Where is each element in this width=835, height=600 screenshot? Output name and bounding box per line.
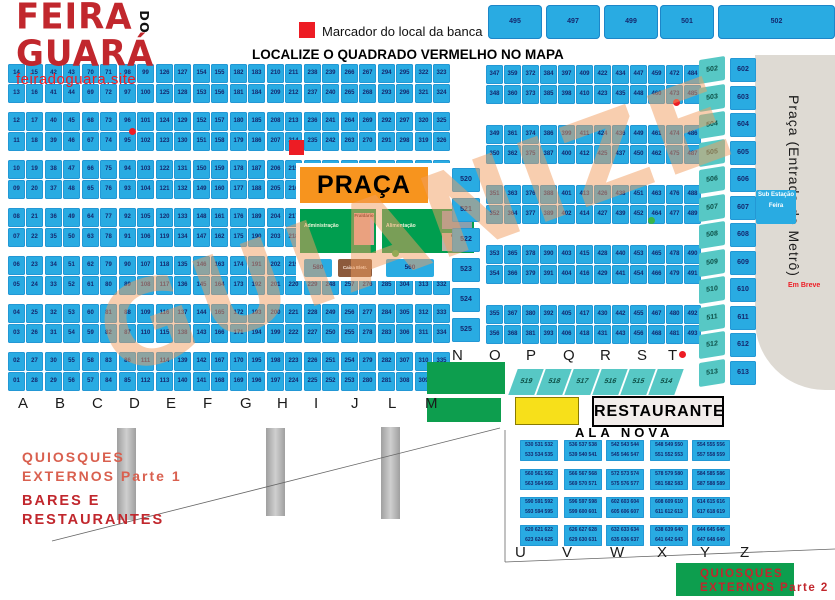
stall-cell[interactable]: 242 bbox=[322, 132, 339, 151]
stall-cell[interactable]: 58 bbox=[82, 352, 99, 371]
stall-cell[interactable]: 521 bbox=[452, 198, 480, 222]
stall-cell[interactable]: 523 bbox=[452, 258, 480, 282]
stall-cell[interactable]: 363 bbox=[504, 185, 521, 204]
stall-cell[interactable]: 193 bbox=[248, 304, 265, 323]
stall-cell[interactable]: 46 bbox=[63, 132, 80, 151]
stall-cell[interactable]: 311 bbox=[415, 324, 432, 343]
stall-cell[interactable]: 280 bbox=[359, 372, 376, 391]
stall-cell[interactable]: 449 bbox=[630, 125, 647, 144]
stall-cell[interactable]: 378 bbox=[522, 245, 539, 264]
stall-cell[interactable]: 366 bbox=[504, 265, 521, 284]
stall-cell[interactable]: 228 bbox=[304, 304, 321, 323]
ala-nova-block[interactable]: 608 609 610611 612 613 bbox=[650, 497, 688, 518]
stall-cell[interactable]: 62 bbox=[82, 256, 99, 275]
stall-cell[interactable]: 67 bbox=[82, 132, 99, 151]
ala-nova-block[interactable]: 530 531 532533 534 535 bbox=[520, 440, 558, 461]
stall-cell[interactable]: 81 bbox=[100, 304, 117, 323]
stall-cell[interactable]: 510 bbox=[699, 276, 725, 304]
stall-cell[interactable]: 01 bbox=[8, 372, 25, 391]
stall-cell[interactable]: 440 bbox=[612, 245, 629, 264]
stall-cell[interactable]: 174 bbox=[230, 256, 247, 275]
stall-cell[interactable]: 23 bbox=[26, 256, 43, 275]
stall-cell[interactable]: 297 bbox=[396, 112, 413, 131]
stall-cell[interactable]: 47 bbox=[63, 160, 80, 179]
stall-cell[interactable]: 31 bbox=[45, 324, 62, 343]
stall-cell[interactable]: 293 bbox=[378, 84, 395, 103]
stall-cell[interactable]: 365 bbox=[504, 245, 521, 264]
stall-cell[interactable]: 104 bbox=[137, 180, 154, 199]
stall-cell[interactable]: 426 bbox=[594, 185, 611, 204]
stall-cell[interactable]: 306 bbox=[396, 324, 413, 343]
stall-cell[interactable]: 116 bbox=[156, 304, 173, 323]
stall-cell[interactable]: 37 bbox=[45, 180, 62, 199]
stall-cell[interactable]: 209 bbox=[267, 84, 284, 103]
stall-cell[interactable]: 429 bbox=[594, 265, 611, 284]
stall-cell[interactable]: 431 bbox=[594, 325, 611, 344]
stall-cell[interactable]: 410 bbox=[576, 85, 593, 104]
stall-cell[interactable]: 127 bbox=[174, 64, 191, 83]
stall-cell[interactable]: 09 bbox=[8, 180, 25, 199]
stall-cell[interactable]: 121 bbox=[156, 180, 173, 199]
stall-cell[interactable]: 223 bbox=[285, 352, 302, 371]
stall-cell[interactable]: 189 bbox=[248, 208, 265, 227]
stall-cell[interactable]: 376 bbox=[522, 185, 539, 204]
stall-cell[interactable]: 404 bbox=[558, 265, 575, 284]
stall-cell[interactable]: 78 bbox=[100, 228, 117, 247]
stall-cell[interactable]: 308 bbox=[396, 372, 413, 391]
stall-cell[interactable]: 02 bbox=[8, 352, 25, 371]
stall-cell[interactable]: 307 bbox=[396, 352, 413, 371]
stall-cell[interactable]: 143 bbox=[193, 324, 210, 343]
stall-cell[interactable]: 128 bbox=[174, 84, 191, 103]
stall-cell[interactable]: 21 bbox=[26, 208, 43, 227]
stall-cell[interactable]: 386 bbox=[540, 125, 557, 144]
stall-cell[interactable]: 74 bbox=[100, 132, 117, 151]
stall-cell[interactable]: 145 bbox=[193, 276, 210, 295]
stall-cell[interactable]: 611 bbox=[730, 306, 756, 330]
stall-cell[interactable]: 177 bbox=[230, 180, 247, 199]
stall-cell[interactable]: 435 bbox=[612, 85, 629, 104]
stall-cell[interactable]: 461 bbox=[648, 125, 665, 144]
stall-cell[interactable]: 379 bbox=[522, 265, 539, 284]
stall-cell[interactable]: 476 bbox=[666, 185, 683, 204]
stall-cell[interactable]: 173 bbox=[230, 276, 247, 295]
stall-cell[interactable]: 251 bbox=[322, 352, 339, 371]
ala-nova-block[interactable]: 548 549 550551 552 553 bbox=[650, 440, 688, 461]
stall-cell[interactable]: 29 bbox=[45, 372, 62, 391]
stall-cell[interactable]: 522 bbox=[452, 228, 480, 252]
stall-cell[interactable]: 18 bbox=[26, 132, 43, 151]
stall-cell[interactable]: 409 bbox=[576, 65, 593, 84]
stall-cell[interactable]: 183 bbox=[248, 64, 265, 83]
stall-cell[interactable]: 265 bbox=[341, 84, 358, 103]
stall-cell[interactable]: 20 bbox=[26, 180, 43, 199]
stall-cell[interactable]: 63 bbox=[82, 228, 99, 247]
stall-cell[interactable]: 238 bbox=[304, 64, 321, 83]
stall-cell[interactable]: 441 bbox=[612, 265, 629, 284]
stall-cell[interactable]: 403 bbox=[558, 245, 575, 264]
stall-cell[interactable]: 88 bbox=[119, 304, 136, 323]
stall-cell[interactable]: 350 bbox=[486, 145, 503, 164]
stall-cell[interactable]: 279 bbox=[359, 352, 376, 371]
stall-cell[interactable]: 03 bbox=[8, 324, 25, 343]
stall-cell[interactable]: 609 bbox=[730, 251, 756, 275]
stall-cell[interactable]: 324 bbox=[433, 84, 450, 103]
stall-cell[interactable]: 427 bbox=[594, 205, 611, 224]
stall-cell[interactable]: 465 bbox=[648, 245, 665, 264]
stall-cell[interactable]: 92 bbox=[119, 208, 136, 227]
stall-cell[interactable]: 349 bbox=[486, 125, 503, 144]
stall-cell[interactable]: 509 bbox=[699, 248, 725, 276]
stall-cell[interactable]: 178 bbox=[230, 160, 247, 179]
stall-cell[interactable]: 602 bbox=[730, 58, 756, 82]
stall-cell[interactable]: 139 bbox=[174, 352, 191, 371]
stall-cell[interactable]: 91 bbox=[119, 228, 136, 247]
stall-cell[interactable]: 455 bbox=[630, 305, 647, 324]
ala-nova-block[interactable]: 626 627 628629 630 631 bbox=[564, 525, 602, 546]
stall-cell[interactable]: 502 bbox=[699, 56, 725, 84]
stall-cell[interactable]: 194 bbox=[248, 324, 265, 343]
stall-cell[interactable]: 36 bbox=[45, 208, 62, 227]
stall-cell[interactable]: 120 bbox=[156, 208, 173, 227]
stall-cell[interactable]: 456 bbox=[630, 325, 647, 344]
stall-cell[interactable]: 389 bbox=[540, 205, 557, 224]
stall-cell[interactable]: 24 bbox=[26, 276, 43, 295]
stall-cell[interactable]: 167 bbox=[211, 352, 228, 371]
stall-cell[interactable]: 49 bbox=[63, 208, 80, 227]
ala-nova-block[interactable]: 536 537 538539 540 541 bbox=[564, 440, 602, 461]
stall-cell[interactable]: 101 bbox=[137, 112, 154, 131]
stall-cell[interactable]: 226 bbox=[304, 352, 321, 371]
stall-cell[interactable]: 524 bbox=[452, 288, 480, 312]
stall-cell[interactable]: 347 bbox=[486, 65, 503, 84]
stall-cell[interactable]: 506 bbox=[699, 166, 725, 194]
stall-cell[interactable]: 38 bbox=[45, 160, 62, 179]
stall-cell[interactable]: 102 bbox=[137, 132, 154, 151]
stall-cell[interactable]: 213 bbox=[285, 112, 302, 131]
stall-cell[interactable]: 225 bbox=[304, 372, 321, 391]
stall-cell[interactable]: 401 bbox=[558, 185, 575, 204]
stall-cell[interactable]: 480 bbox=[666, 305, 683, 324]
stall-cell[interactable]: 25 bbox=[26, 304, 43, 323]
stall-cell[interactable]: 110 bbox=[137, 324, 154, 343]
stall-cell[interactable]: 352 bbox=[486, 205, 503, 224]
stall-cell[interactable]: 417 bbox=[576, 305, 593, 324]
stall-cell[interactable]: 353 bbox=[486, 245, 503, 264]
stall-cell[interactable]: 144 bbox=[193, 304, 210, 323]
stall-cell[interactable]: 525 bbox=[452, 318, 480, 342]
stall-cell[interactable]: 10 bbox=[8, 160, 25, 179]
stall-cell[interactable]: 185 bbox=[248, 112, 265, 131]
stall-cell[interactable]: 163 bbox=[211, 256, 228, 275]
stall-cell[interactable]: 264 bbox=[341, 112, 358, 131]
stall-cell[interactable]: 610 bbox=[730, 278, 756, 302]
stall-cell[interactable]: 400 bbox=[558, 145, 575, 164]
stall-cell[interactable]: 475 bbox=[666, 145, 683, 164]
stall-cell[interactable]: 291 bbox=[378, 132, 395, 151]
stall-cell[interactable]: 200 bbox=[267, 304, 284, 323]
stall-cell[interactable]: 122 bbox=[156, 160, 173, 179]
stall-cell[interactable]: 283 bbox=[378, 324, 395, 343]
banca-location-marker[interactable] bbox=[289, 140, 304, 155]
stall-cell[interactable]: 385 bbox=[540, 85, 557, 104]
ala-nova-block[interactable]: 590 591 592593 594 595 bbox=[520, 497, 558, 518]
stall-cell[interactable]: 53 bbox=[63, 304, 80, 323]
stall-cell[interactable]: 176 bbox=[230, 208, 247, 227]
stall-cell[interactable]: 87 bbox=[119, 324, 136, 343]
stall-cell[interactable]: 39 bbox=[45, 132, 62, 151]
stall-cell[interactable]: 130 bbox=[174, 132, 191, 151]
stall-cell[interactable]: 76 bbox=[100, 180, 117, 199]
stall-cell[interactable]: 79 bbox=[100, 256, 117, 275]
stall-cell[interactable]: 212 bbox=[285, 84, 302, 103]
stall-cell[interactable]: 606 bbox=[730, 168, 756, 192]
stall-cell[interactable]: 292 bbox=[378, 112, 395, 131]
stall-cell[interactable]: 54 bbox=[63, 324, 80, 343]
stall-cell[interactable]: 270 bbox=[359, 132, 376, 151]
ala-nova-block[interactable]: 620 621 622623 624 625 bbox=[520, 525, 558, 546]
stall-cell[interactable]: 205 bbox=[267, 180, 284, 199]
stall-cell[interactable]: 374 bbox=[522, 125, 539, 144]
stall-cell[interactable]: 179 bbox=[230, 132, 247, 151]
stall-cell[interactable]: 147 bbox=[193, 228, 210, 247]
stall-cell[interactable]: 512 bbox=[699, 331, 725, 359]
stall-cell[interactable]: 241 bbox=[322, 112, 339, 131]
stall-cell[interactable]: 134 bbox=[174, 228, 191, 247]
stall-cell[interactable]: 201 bbox=[267, 276, 284, 295]
stall-cell[interactable]: 448 bbox=[630, 85, 647, 104]
stall-cell[interactable]: 474 bbox=[666, 125, 683, 144]
stall-cell[interactable]: 64 bbox=[82, 208, 99, 227]
stall-cell[interactable]: 172 bbox=[230, 304, 247, 323]
stall-cell[interactable]: 75 bbox=[100, 160, 117, 179]
stall-cell[interactable]: 162 bbox=[211, 228, 228, 247]
stall-cell[interactable]: 397 bbox=[558, 65, 575, 84]
stall-cell[interactable]: 82 bbox=[100, 324, 117, 343]
stall-cell[interactable]: 203 bbox=[267, 228, 284, 247]
stall-cell[interactable]: 55 bbox=[63, 352, 80, 371]
stall-cell[interactable]: 105 bbox=[137, 208, 154, 227]
stall-cell[interactable]: 208 bbox=[267, 112, 284, 131]
stall-cell[interactable]: 443 bbox=[612, 325, 629, 344]
stall-cell[interactable]: 68 bbox=[82, 112, 99, 131]
stall-cell[interactable]: 165 bbox=[211, 304, 228, 323]
stall-cell[interactable]: 182 bbox=[230, 64, 247, 83]
stall-cell[interactable]: 123 bbox=[156, 132, 173, 151]
stall-cell[interactable]: 333 bbox=[433, 304, 450, 323]
ala-nova-block[interactable]: 632 633 634635 636 637 bbox=[606, 525, 644, 546]
stall-cell[interactable]: 83 bbox=[100, 352, 117, 371]
stall-cell[interactable]: 278 bbox=[359, 324, 376, 343]
stall-cell[interactable]: 415 bbox=[576, 245, 593, 264]
stall-cell[interactable]: 398 bbox=[558, 85, 575, 104]
stall-cell[interactable]: 239 bbox=[322, 64, 339, 83]
stall-cell[interactable]: 195 bbox=[248, 352, 265, 371]
stall-cell[interactable]: 319 bbox=[415, 132, 432, 151]
stall-cell[interactable]: 166 bbox=[211, 324, 228, 343]
ala-nova-block[interactable]: 542 543 544545 546 547 bbox=[606, 440, 644, 461]
stall-cell[interactable]: 26 bbox=[26, 324, 43, 343]
stall-cell[interactable]: 159 bbox=[211, 160, 228, 179]
stall-cell[interactable]: 206 bbox=[267, 160, 284, 179]
stall-cell[interactable]: 202 bbox=[267, 256, 284, 275]
stall-cell[interactable]: 513 bbox=[699, 358, 725, 386]
stall-cell[interactable]: 520 bbox=[452, 168, 480, 192]
stall-cell[interactable]: 04 bbox=[8, 304, 25, 323]
stall-cell[interactable]: 380 bbox=[522, 305, 539, 324]
stall-cell[interactable]: 364 bbox=[504, 205, 521, 224]
stall-cell[interactable]: 384 bbox=[540, 65, 557, 84]
stall-cell[interactable]: 48 bbox=[63, 180, 80, 199]
stall-cell[interactable]: 199 bbox=[267, 324, 284, 343]
stall-cell[interactable]: 468 bbox=[648, 325, 665, 344]
stall-cell[interactable]: 154 bbox=[193, 64, 210, 83]
stall-cell[interactable]: 249 bbox=[322, 304, 339, 323]
stall-cell[interactable]: 240 bbox=[322, 84, 339, 103]
stall-cell[interactable]: 141 bbox=[193, 372, 210, 391]
stall-cell[interactable]: 168 bbox=[211, 372, 228, 391]
stall-cell[interactable]: 22 bbox=[26, 228, 43, 247]
stall-cell[interactable]: 612 bbox=[730, 333, 756, 357]
stall-cell[interactable]: 158 bbox=[211, 132, 228, 151]
stall-cell[interactable]: 334 bbox=[433, 324, 450, 343]
stall-cell[interactable]: 438 bbox=[612, 185, 629, 204]
stall-cell[interactable]: 236 bbox=[304, 112, 321, 131]
stall-cell[interactable]: 224 bbox=[285, 372, 302, 391]
stall-cell[interactable]: 117 bbox=[156, 276, 173, 295]
stall-cell[interactable]: 146 bbox=[193, 256, 210, 275]
stall-cell[interactable]: 07 bbox=[8, 228, 25, 247]
stall-cell[interactable]: 06 bbox=[8, 256, 25, 275]
stall-cell[interactable]: 126 bbox=[156, 64, 173, 83]
stall-cell[interactable]: 113 bbox=[156, 372, 173, 391]
stall-cell[interactable]: 66 bbox=[82, 160, 99, 179]
stall-cell[interactable]: 294 bbox=[378, 64, 395, 83]
stall-cell[interactable]: 27 bbox=[26, 352, 43, 371]
stall-cell[interactable]: 412 bbox=[576, 145, 593, 164]
stall-cell[interactable]: 57 bbox=[82, 372, 99, 391]
stall-cell[interactable]: 135 bbox=[174, 256, 191, 275]
ala-nova-block[interactable]: 578 579 580581 582 583 bbox=[650, 469, 688, 490]
stall-cell[interactable]: 267 bbox=[359, 64, 376, 83]
stall-cell[interactable]: 210 bbox=[267, 64, 284, 83]
stall-cell[interactable]: 281 bbox=[378, 372, 395, 391]
stall-cell[interactable]: 59 bbox=[82, 324, 99, 343]
stall-cell[interactable]: 323 bbox=[433, 64, 450, 83]
stall-cell[interactable]: 30 bbox=[45, 352, 62, 371]
stall-cell[interactable]: 33 bbox=[45, 276, 62, 295]
stall-cell[interactable]: 08 bbox=[8, 208, 25, 227]
stall-cell[interactable]: 73 bbox=[100, 112, 117, 131]
stall-cell[interactable]: 391 bbox=[540, 265, 557, 284]
stall-cell[interactable]: 393 bbox=[540, 325, 557, 344]
stall-cell[interactable]: 284 bbox=[378, 304, 395, 323]
stall-cell[interactable]: 140 bbox=[174, 372, 191, 391]
stall-cell[interactable]: 472 bbox=[666, 65, 683, 84]
stall-cell[interactable]: 296 bbox=[396, 84, 413, 103]
stall-cell[interactable]: 32 bbox=[45, 304, 62, 323]
stall-cell[interactable]: 277 bbox=[359, 304, 376, 323]
stall-block[interactable]: 501 bbox=[660, 5, 714, 39]
stall-cell[interactable]: 106 bbox=[137, 228, 154, 247]
stall-cell[interactable]: 133 bbox=[174, 208, 191, 227]
stall-cell[interactable]: 164 bbox=[211, 276, 228, 295]
stall-cell[interactable]: 478 bbox=[666, 245, 683, 264]
stall-cell[interactable]: 298 bbox=[396, 132, 413, 151]
stall-cell[interactable]: 204 bbox=[267, 208, 284, 227]
stall-cell[interactable]: 250 bbox=[322, 324, 339, 343]
stall-cell[interactable]: 424 bbox=[594, 125, 611, 144]
stall-cell[interactable]: 50 bbox=[63, 228, 80, 247]
ala-nova-block[interactable]: 596 597 598599 600 601 bbox=[564, 497, 602, 518]
stall-cell[interactable]: 406 bbox=[558, 325, 575, 344]
stall-cell[interactable]: 320 bbox=[415, 112, 432, 131]
stall-cell[interactable]: 452 bbox=[630, 205, 647, 224]
stall-block-wide[interactable]: 502 bbox=[718, 5, 835, 39]
stall-cell[interactable]: 354 bbox=[486, 265, 503, 284]
stall-cell[interactable]: 447 bbox=[630, 65, 647, 84]
stall-cell[interactable]: 35 bbox=[45, 228, 62, 247]
stall-cell[interactable]: 416 bbox=[576, 265, 593, 284]
stall-cell[interactable]: 381 bbox=[522, 325, 539, 344]
stall-cell[interactable]: 411 bbox=[576, 125, 593, 144]
stall-cell[interactable]: 40 bbox=[45, 112, 62, 131]
stall-cell[interactable]: 367 bbox=[504, 305, 521, 324]
stall-cell[interactable]: 305 bbox=[396, 304, 413, 323]
stall-cell[interactable]: 05 bbox=[8, 276, 25, 295]
stall-cell[interactable]: 608 bbox=[730, 223, 756, 247]
stall-cell[interactable]: 151 bbox=[193, 132, 210, 151]
stall-cell[interactable]: 351 bbox=[486, 185, 503, 204]
stall-cell[interactable]: 131 bbox=[174, 160, 191, 179]
stall-cell[interactable]: 171 bbox=[230, 324, 247, 343]
stall-cell[interactable]: 466 bbox=[648, 265, 665, 284]
stall-cell[interactable]: 462 bbox=[648, 145, 665, 164]
stall-cell[interactable]: 12 bbox=[8, 112, 25, 131]
ala-nova-block[interactable]: 614 615 616617 618 619 bbox=[692, 497, 730, 518]
stall-cell[interactable]: 169 bbox=[230, 372, 247, 391]
stall-cell[interactable]: 227 bbox=[304, 324, 321, 343]
stall-cell[interactable]: 481 bbox=[666, 325, 683, 344]
stall-cell[interactable]: 153 bbox=[193, 84, 210, 103]
stall-cell[interactable]: 460 bbox=[648, 85, 665, 104]
stall-block[interactable]: 497 bbox=[546, 5, 600, 39]
stall-cell[interactable]: 94 bbox=[119, 160, 136, 179]
stall-cell[interactable]: 252 bbox=[322, 372, 339, 391]
stall-cell[interactable]: 237 bbox=[304, 84, 321, 103]
stall-cell[interactable]: 221 bbox=[285, 304, 302, 323]
stall-cell[interactable]: 80 bbox=[100, 276, 117, 295]
stall-cell[interactable]: 356 bbox=[486, 325, 503, 344]
stall-cell[interactable]: 129 bbox=[174, 112, 191, 131]
stall-cell[interactable]: 451 bbox=[630, 185, 647, 204]
stall-cell[interactable]: 107 bbox=[137, 256, 154, 275]
stall-cell[interactable]: 180 bbox=[230, 112, 247, 131]
stall-cell[interactable]: 256 bbox=[341, 304, 358, 323]
stall-cell[interactable]: 613 bbox=[730, 361, 756, 385]
stall-cell[interactable]: 295 bbox=[396, 64, 413, 83]
stall-cell[interactable]: 136 bbox=[174, 276, 191, 295]
stall-cell[interactable]: 148 bbox=[193, 208, 210, 227]
stall-cell[interactable]: 119 bbox=[156, 228, 173, 247]
stall-cell[interactable]: 77 bbox=[100, 208, 117, 227]
stall-cell[interactable]: 321 bbox=[415, 84, 432, 103]
stall-cell[interactable]: 430 bbox=[594, 305, 611, 324]
ala-nova-block[interactable]: 602 603 604605 606 607 bbox=[606, 497, 644, 518]
stall-cell[interactable]: 375 bbox=[522, 145, 539, 164]
ala-nova-block[interactable]: 572 573 574575 576 577 bbox=[606, 469, 644, 490]
stall-cell[interactable]: 425 bbox=[594, 145, 611, 164]
